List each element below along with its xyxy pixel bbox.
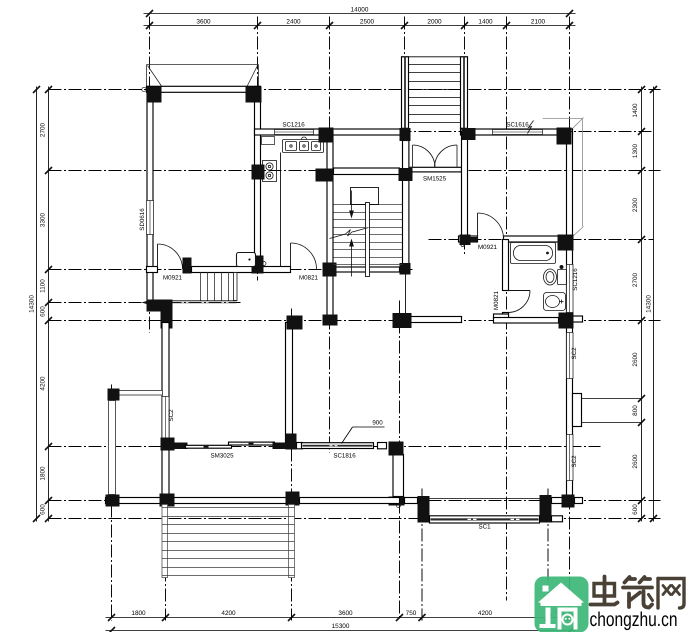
- svg-text:3600: 3600: [196, 19, 211, 26]
- svg-text:2600: 2600: [632, 352, 639, 367]
- svg-text:1400: 1400: [478, 19, 493, 26]
- svg-text:14300: 14300: [29, 295, 36, 313]
- svg-text:SD0616: SD0616: [139, 208, 146, 231]
- svg-text:15300: 15300: [332, 623, 350, 630]
- svg-text:SC1216: SC1216: [282, 122, 305, 129]
- svg-text:1800: 1800: [40, 466, 47, 481]
- svg-text:1400: 1400: [632, 103, 639, 118]
- svg-text:14300: 14300: [646, 295, 653, 313]
- svg-text:M0821: M0821: [299, 275, 318, 282]
- svg-text:600: 600: [40, 306, 47, 317]
- svg-text:SC1216: SC1216: [572, 268, 579, 291]
- svg-text:2300: 2300: [632, 197, 639, 212]
- svg-text:SC2: SC2: [571, 455, 578, 468]
- svg-text:SC2: SC2: [571, 347, 578, 360]
- svg-text:SM3025: SM3025: [210, 453, 234, 460]
- svg-text:SC1: SC1: [478, 524, 491, 531]
- svg-text:M0821: M0821: [493, 290, 500, 309]
- svg-text:1800: 1800: [131, 610, 146, 617]
- svg-text:800: 800: [632, 405, 639, 416]
- svg-text:3600: 3600: [338, 610, 353, 617]
- svg-text:750: 750: [406, 610, 417, 617]
- svg-text:2600: 2600: [632, 454, 639, 469]
- svg-text:SC1616: SC1616: [506, 122, 529, 129]
- svg-text:2500: 2500: [360, 19, 375, 26]
- svg-text:900: 900: [372, 420, 383, 427]
- svg-text:M0921: M0921: [478, 244, 497, 251]
- svg-text:SC2: SC2: [168, 409, 175, 422]
- svg-text:2700: 2700: [40, 122, 47, 137]
- svg-text:chongzhu.cn: chongzhu.cn: [590, 609, 678, 631]
- svg-text:SC1816: SC1816: [333, 453, 356, 460]
- svg-text:2000: 2000: [427, 19, 442, 26]
- svg-text:M0921: M0921: [163, 275, 182, 282]
- svg-text:4200: 4200: [221, 610, 236, 617]
- svg-text:2100: 2100: [531, 19, 546, 26]
- svg-text:4200: 4200: [40, 376, 47, 391]
- svg-text:4200: 4200: [478, 610, 493, 617]
- svg-text:600: 600: [632, 504, 639, 515]
- svg-text:SM1525: SM1525: [423, 176, 447, 183]
- svg-text:2400: 2400: [286, 19, 301, 26]
- svg-text:3300: 3300: [40, 212, 47, 227]
- svg-text:1300: 1300: [632, 143, 639, 158]
- svg-text:2700: 2700: [632, 272, 639, 287]
- svg-text:1100: 1100: [40, 279, 47, 293]
- svg-text:14000: 14000: [351, 7, 369, 14]
- svg-text:600: 600: [40, 504, 47, 515]
